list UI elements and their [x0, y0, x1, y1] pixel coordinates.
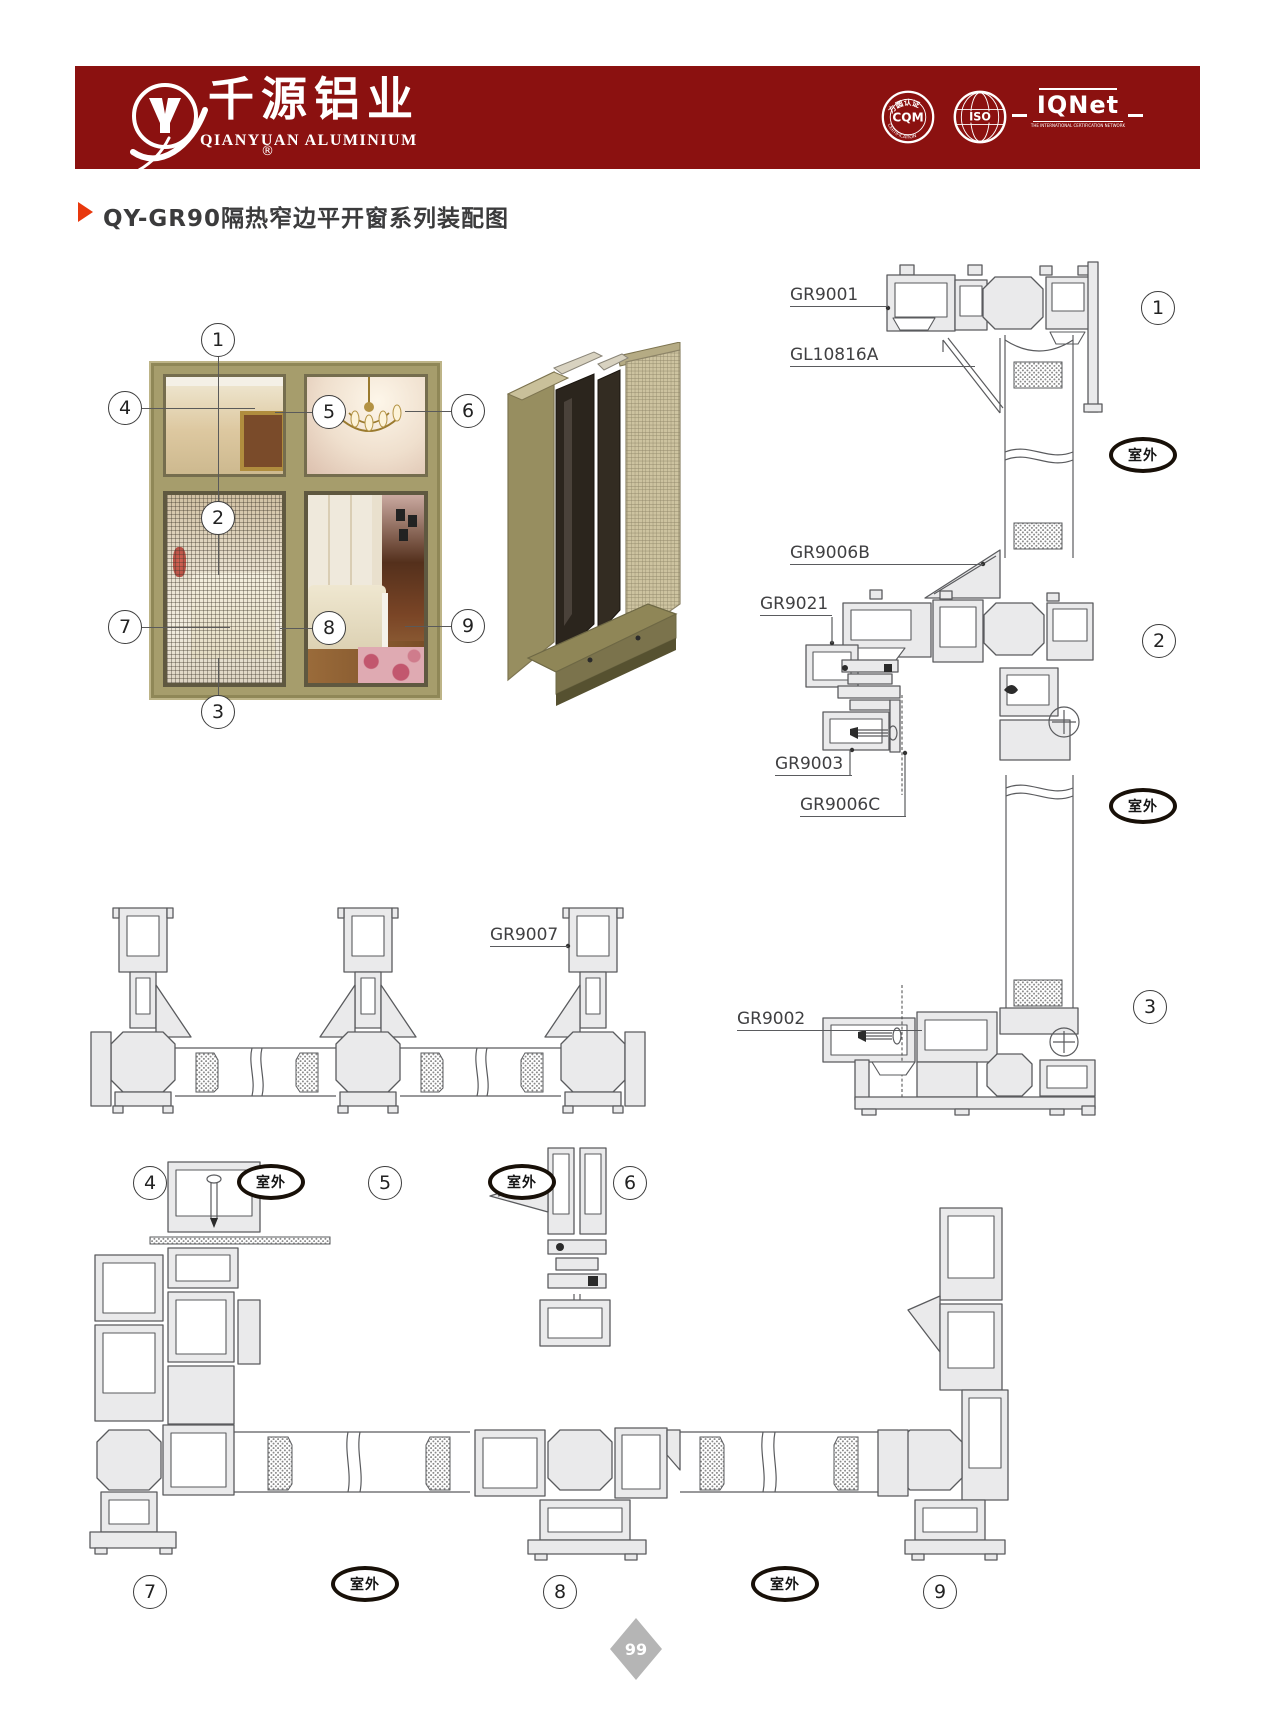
iqnet-label: IQNet	[1030, 90, 1126, 120]
part-label-gr9006c: GR9006C	[800, 796, 906, 817]
window-pane-topleft	[163, 374, 286, 477]
horizontal-sections-drawing-bottom	[80, 1140, 1020, 1565]
glass-band	[234, 1432, 470, 1492]
glass-band	[400, 1048, 561, 1096]
photo-wall-frames	[396, 509, 418, 543]
iso-globe-icon: ISO	[952, 89, 1008, 145]
section-5	[320, 908, 416, 1113]
leader-line	[218, 357, 219, 501]
window-pane-bottomright	[304, 491, 428, 687]
iqnet-badge: IQNet THE INTERNATIONAL CERTIFICATION NE…	[1030, 88, 1126, 129]
callout-3: 3	[201, 695, 235, 729]
svg-text:CERTIFICATION: CERTIFICATION	[886, 123, 918, 141]
detail-marker-2: 2	[1142, 624, 1176, 658]
catalog-page: ® 千源铝业 QIANYUAN ALUMINIUM 方圆认证 CQM CERTI…	[0, 0, 1276, 1719]
detail-marker-3: 3	[1133, 990, 1167, 1024]
brand-name-en: QIANYUAN ALUMINIUM	[200, 132, 418, 150]
bed-post	[382, 593, 388, 649]
brand-name-cn: 千源铝业	[208, 76, 420, 122]
section-7	[90, 1162, 330, 1554]
outdoor-badge: 室外	[1109, 437, 1177, 473]
iqnet-left-dash	[1012, 114, 1027, 117]
cqm-certification-icon: 方圆认证 CQM CERTIFICATION	[880, 89, 936, 145]
detail-2-transom-section	[806, 550, 1093, 1008]
leader-line	[405, 411, 451, 412]
iso-label-text: ISO	[969, 111, 991, 124]
part-label-gr9002: GR9002	[737, 1010, 922, 1031]
glass-band	[680, 1432, 878, 1492]
page-title: QY-GR90隔热窄边平开窗系列装配图	[103, 199, 509, 233]
callout-8: 8	[312, 611, 346, 645]
leader-line	[142, 408, 255, 409]
callout-1: 1	[201, 323, 235, 357]
picture-frame	[240, 411, 286, 471]
outdoor-badge: 室外	[1109, 788, 1177, 824]
callout-7: 7	[108, 610, 142, 644]
outdoor-badge: 室外	[751, 1566, 819, 1602]
floral-rug	[358, 647, 424, 683]
brand-logo-icon	[119, 76, 211, 176]
iqnet-subtext: THE INTERNATIONAL CERTIFICATION NETWORK	[1030, 123, 1126, 129]
part-label-gr9003: GR9003	[775, 755, 852, 776]
detail-marker-4: 4	[133, 1166, 167, 1200]
detail-marker-8: 8	[543, 1575, 577, 1609]
callout-6: 6	[451, 394, 485, 428]
page-number-badge: 99	[610, 1618, 662, 1680]
detail-marker-9: 9	[923, 1575, 957, 1609]
detail-1-head-section	[886, 262, 1102, 558]
outdoor-badge: 室外	[237, 1164, 305, 1200]
part-label-gl10816a: GL10816A	[790, 346, 975, 367]
section-4	[91, 908, 191, 1113]
detail-marker-5: 5	[368, 1166, 402, 1200]
outdoor-badge: 室外	[488, 1164, 556, 1200]
leader-line	[275, 412, 312, 413]
cqm-label-text: CQM	[892, 111, 923, 125]
part-label-gr9007: GR9007	[490, 926, 568, 947]
section-9	[878, 1208, 1008, 1560]
title-arrow-icon	[78, 202, 93, 222]
callout-5: 5	[312, 395, 346, 429]
leader-line	[405, 626, 451, 627]
outdoor-badge: 室外	[331, 1566, 399, 1602]
leader-line	[142, 627, 230, 628]
callout-4: 4	[108, 391, 142, 425]
callout-2: 2	[201, 501, 235, 535]
leader-line	[218, 658, 219, 695]
part-label-gr9006b: GR9006B	[790, 544, 983, 565]
iqnet-right-dash	[1128, 114, 1143, 117]
leader-line	[280, 628, 312, 629]
profile-render-3d	[498, 342, 688, 712]
part-label-gr9001: GR9001	[790, 286, 888, 307]
section-8	[475, 1148, 680, 1560]
detail-marker-6: 6	[613, 1166, 647, 1200]
detail-marker-7: 7	[133, 1575, 167, 1609]
callout-9: 9	[451, 609, 485, 643]
part-label-gr9021: GR9021	[760, 595, 832, 616]
horizontal-sections-drawing-top	[85, 900, 675, 1125]
vertical-section-drawing	[690, 245, 1210, 1125]
leader-line	[218, 535, 219, 575]
glass-band	[175, 1048, 336, 1096]
detail-marker-1: 1	[1141, 291, 1175, 325]
